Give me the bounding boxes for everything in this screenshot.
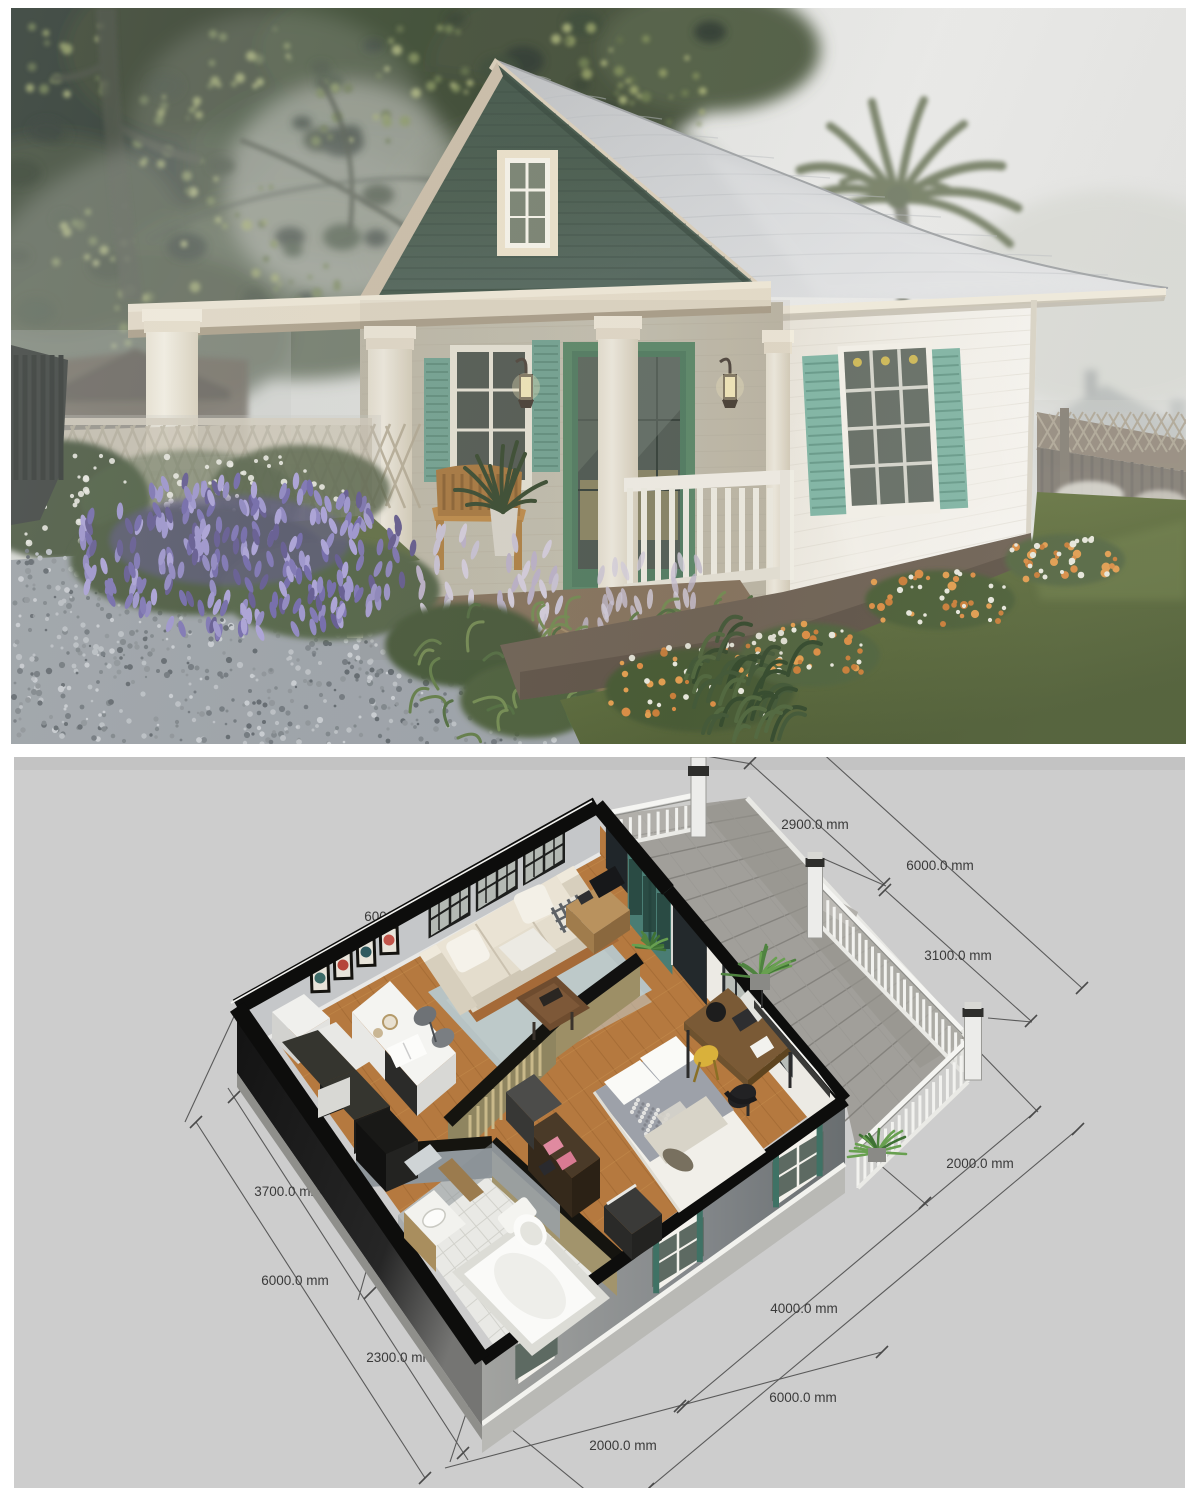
svg-text:3100.0 mm: 3100.0 mm: [924, 948, 992, 963]
svg-text:6000.0 mm: 6000.0 mm: [261, 1273, 329, 1288]
svg-text:2000.0 mm: 2000.0 mm: [589, 1438, 657, 1453]
svg-text:6000.0 mm: 6000.0 mm: [906, 858, 974, 873]
svg-text:4000.0 mm: 4000.0 mm: [770, 1301, 838, 1316]
svg-text:6000.0 mm: 6000.0 mm: [769, 1390, 837, 1405]
svg-text:2900.0 mm: 2900.0 mm: [781, 817, 849, 832]
svg-text:2000.0 mm: 2000.0 mm: [946, 1156, 1014, 1171]
